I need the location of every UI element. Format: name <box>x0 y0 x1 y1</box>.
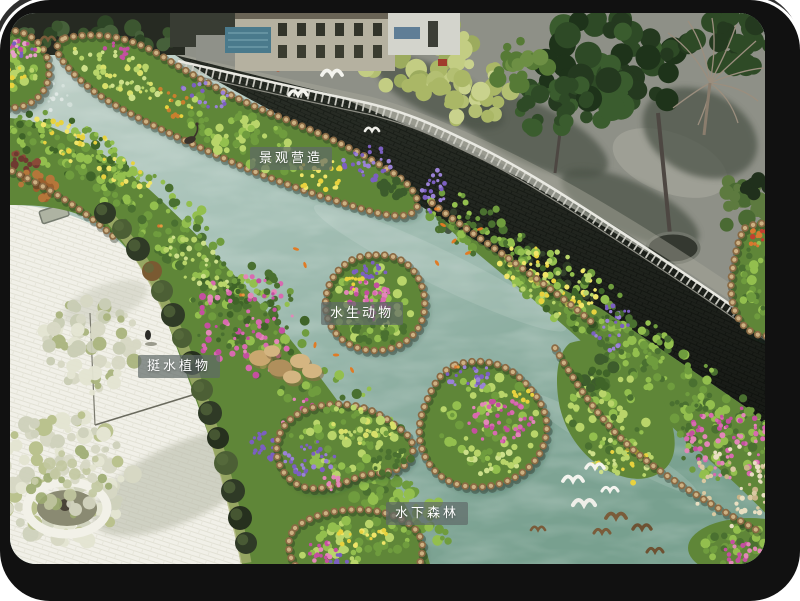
slide-canvas: 景观营造 水生动物 挺水植物 水下森林 <box>0 0 800 601</box>
label-emergent-plants: 挺水植物 <box>138 355 220 378</box>
aerial-river-scene <box>10 13 765 564</box>
label-landscape-creation: 景观营造 <box>250 147 332 170</box>
label-underwater-forest: 水下森林 <box>386 502 468 525</box>
aerial-river-photo: 景观营造 水生动物 挺水植物 水下森林 <box>10 13 765 564</box>
label-aquatic-animals: 水生动物 <box>321 302 403 325</box>
